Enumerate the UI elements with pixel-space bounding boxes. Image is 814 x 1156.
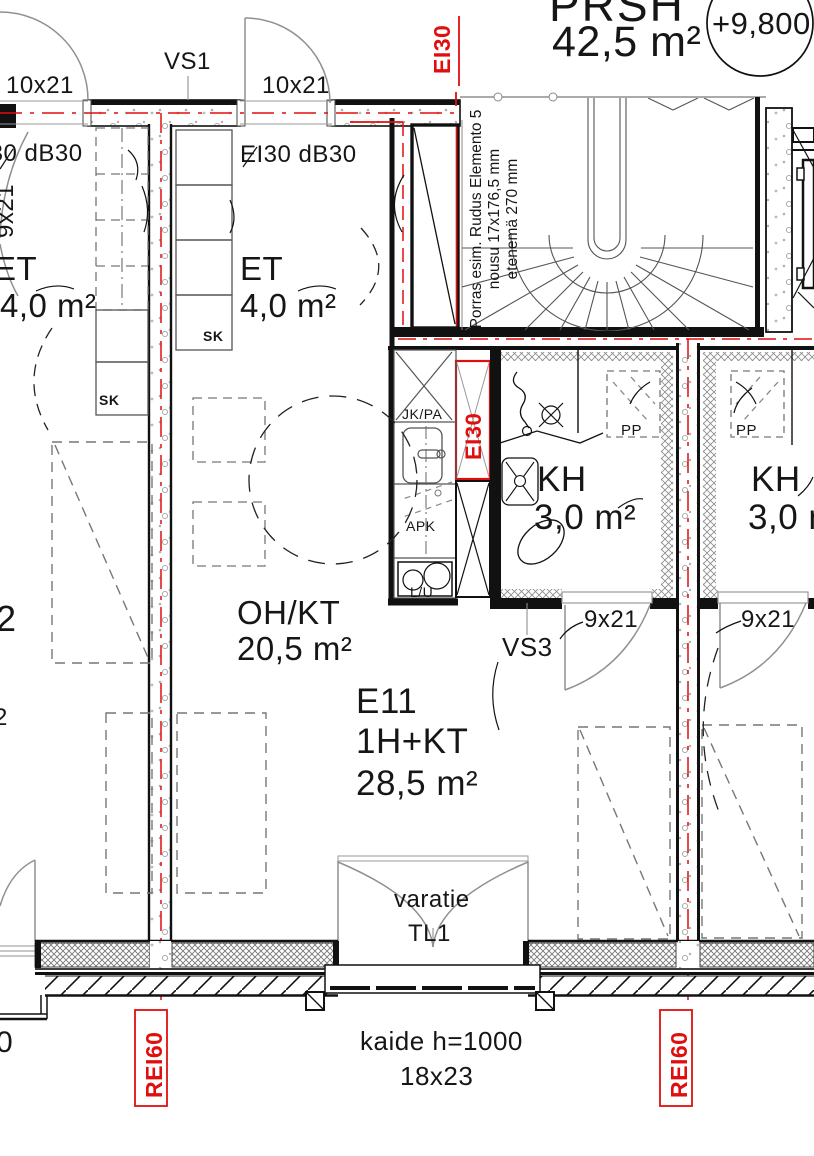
wall-type-vs3-label: VS3	[502, 632, 553, 663]
room-name-et-left: ET	[0, 250, 37, 288]
apartment-id: E11	[356, 682, 417, 722]
wall-type-vs1-label: VS1	[164, 48, 211, 76]
door-size-label-rotated: 9x21	[0, 184, 20, 238]
door-size-label: 9x21	[741, 606, 795, 634]
fire-rating-rei60-left: REI60	[141, 1032, 168, 1098]
fire-rating-ei30db30-right: EI30 dB30	[240, 141, 357, 169]
fire-rating-ei30-shaft: EI30	[461, 413, 487, 460]
stair-note: Porras esim. Rudus Elemento 5 nousu 17x1…	[468, 96, 522, 342]
apartment-type: 1H+KT	[356, 722, 468, 762]
railing-height-label: kaide h=1000	[360, 1026, 523, 1057]
escape-route-label: varatie	[394, 886, 470, 914]
door-size-label: 10x21	[6, 72, 74, 100]
room-area-et-left: 4,0 m²	[0, 287, 97, 325]
fridge-jkpa-label: JK/PA	[402, 406, 442, 422]
door-size-label: 18x23	[400, 1061, 473, 1092]
stair-note-line2: nousu 17x176,5 mm	[486, 96, 504, 342]
washer-pp-left-label: PP	[621, 422, 642, 439]
stair-note-line3: etenemä 270 mm	[504, 96, 522, 342]
dishwasher-apk-label: APK	[406, 518, 436, 534]
room-area-kh-e11: 3,0 m²	[534, 498, 636, 538]
room-name-et-right: ET	[240, 250, 283, 288]
door-size-label: 9x21	[584, 606, 638, 634]
washer-pp-right-label: PP	[736, 422, 757, 439]
clipped-text-fragment: 0	[0, 1026, 13, 1060]
room-area-et-right: 4,0 m²	[240, 287, 337, 325]
stairwell-walls	[392, 93, 792, 347]
room-name-kh-e11: KH	[537, 460, 587, 500]
clipped-text-fragment: 2	[0, 704, 8, 732]
clipped-text-fragment: 2	[0, 598, 17, 640]
fire-rating-ei30db30-left: EI30 dB30	[0, 140, 83, 168]
fire-rating-rei60-right: REI60	[666, 1032, 693, 1098]
room-area-ohkt: 20,5 m²	[237, 630, 352, 668]
room-area-prsh: 42,5 m²	[552, 18, 701, 67]
cabinet-sk-right-label: SK	[203, 328, 223, 344]
door-size-label: 10x21	[262, 72, 330, 100]
apartment-area: 28,5 m²	[356, 764, 478, 804]
floor-plan: 10x21 VS1 10x21 EI30 PRSH 42,5 m² +9,800…	[0, 0, 814, 1156]
balcony	[306, 965, 554, 1010]
room-name-kh-right: KH	[751, 460, 801, 500]
wardrobes	[96, 128, 265, 566]
kh-e11	[388, 348, 677, 609]
room-name-ohkt: OH/KT	[237, 594, 340, 632]
stair-note-line1: Porras esim. Rudus Elemento 5	[468, 96, 486, 342]
plan-linework	[0, 0, 814, 1156]
balcony-door-tl1-label: TL1	[408, 920, 451, 948]
room-area-kh-right: 3,0 m²	[748, 498, 814, 538]
level-mark-label: +9,800	[712, 6, 811, 42]
fire-rating-ei30-top: EI30	[429, 25, 456, 74]
elevator-shaft	[792, 128, 814, 308]
cabinet-sk-left-label: SK	[99, 392, 119, 408]
stove-lu-label: L/U	[410, 584, 433, 600]
